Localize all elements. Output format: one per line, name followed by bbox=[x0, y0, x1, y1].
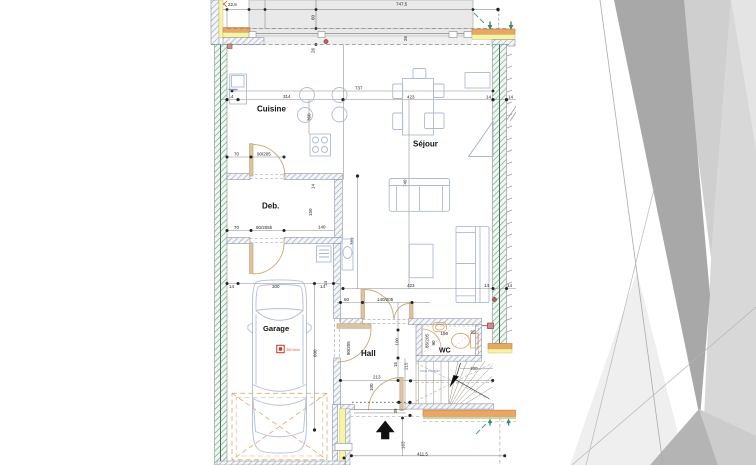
svg-text:14: 14 bbox=[508, 95, 514, 100]
svg-text:Garage: Garage bbox=[263, 324, 289, 333]
svg-text:14: 14 bbox=[507, 283, 513, 288]
svg-text:Séjour: Séjour bbox=[413, 140, 438, 149]
svg-text:70: 70 bbox=[234, 225, 240, 230]
svg-text:389: 389 bbox=[350, 237, 355, 245]
svg-text:90/205: 90/205 bbox=[257, 152, 271, 157]
svg-text:Cuisine: Cuisine bbox=[257, 105, 286, 114]
svg-text:WC: WC bbox=[439, 348, 451, 355]
svg-text:sous escalier: sous escalier bbox=[420, 369, 441, 373]
svg-text:747,5: 747,5 bbox=[396, 2, 408, 7]
svg-text:14: 14 bbox=[320, 284, 326, 289]
svg-text:150: 150 bbox=[308, 208, 313, 216]
svg-text:14: 14 bbox=[486, 95, 492, 100]
svg-text:26: 26 bbox=[311, 47, 316, 53]
svg-text:163: 163 bbox=[401, 441, 406, 449]
svg-text:314: 314 bbox=[283, 94, 291, 99]
svg-text:600: 600 bbox=[312, 349, 317, 357]
svg-text:Hall: Hall bbox=[361, 349, 376, 358]
svg-text:423: 423 bbox=[407, 283, 415, 288]
svg-text:39: 39 bbox=[393, 408, 398, 414]
svg-text:14: 14 bbox=[229, 284, 235, 289]
svg-text:100: 100 bbox=[395, 337, 400, 345]
svg-text:22,5: 22,5 bbox=[228, 2, 237, 7]
svg-text:95: 95 bbox=[471, 330, 477, 335]
svg-text:140/205: 140/205 bbox=[377, 297, 394, 302]
svg-text:14: 14 bbox=[311, 183, 316, 189]
svg-text:85/205: 85/205 bbox=[425, 334, 430, 348]
svg-text:140: 140 bbox=[318, 225, 326, 230]
svg-text:737: 737 bbox=[355, 86, 363, 91]
svg-text:213: 213 bbox=[373, 375, 381, 380]
svg-text:90: 90 bbox=[431, 340, 436, 346]
svg-text:14: 14 bbox=[484, 283, 490, 288]
svg-text:Deb.: Deb. bbox=[262, 202, 279, 211]
svg-text:90/205h: 90/205h bbox=[256, 225, 273, 230]
svg-text:100: 100 bbox=[369, 383, 374, 391]
svg-text:423: 423 bbox=[407, 95, 415, 100]
svg-text:60: 60 bbox=[311, 14, 316, 20]
svg-text:215: 215 bbox=[404, 362, 409, 370]
svg-text:26: 26 bbox=[403, 35, 408, 41]
svg-text:80/205: 80/205 bbox=[346, 341, 351, 355]
svg-text:150: 150 bbox=[441, 331, 449, 336]
svg-text:60: 60 bbox=[344, 297, 350, 302]
svg-text:15: 15 bbox=[393, 361, 398, 367]
svg-text:300 l/min: 300 l/min bbox=[286, 348, 300, 352]
svg-text:70: 70 bbox=[234, 152, 240, 157]
